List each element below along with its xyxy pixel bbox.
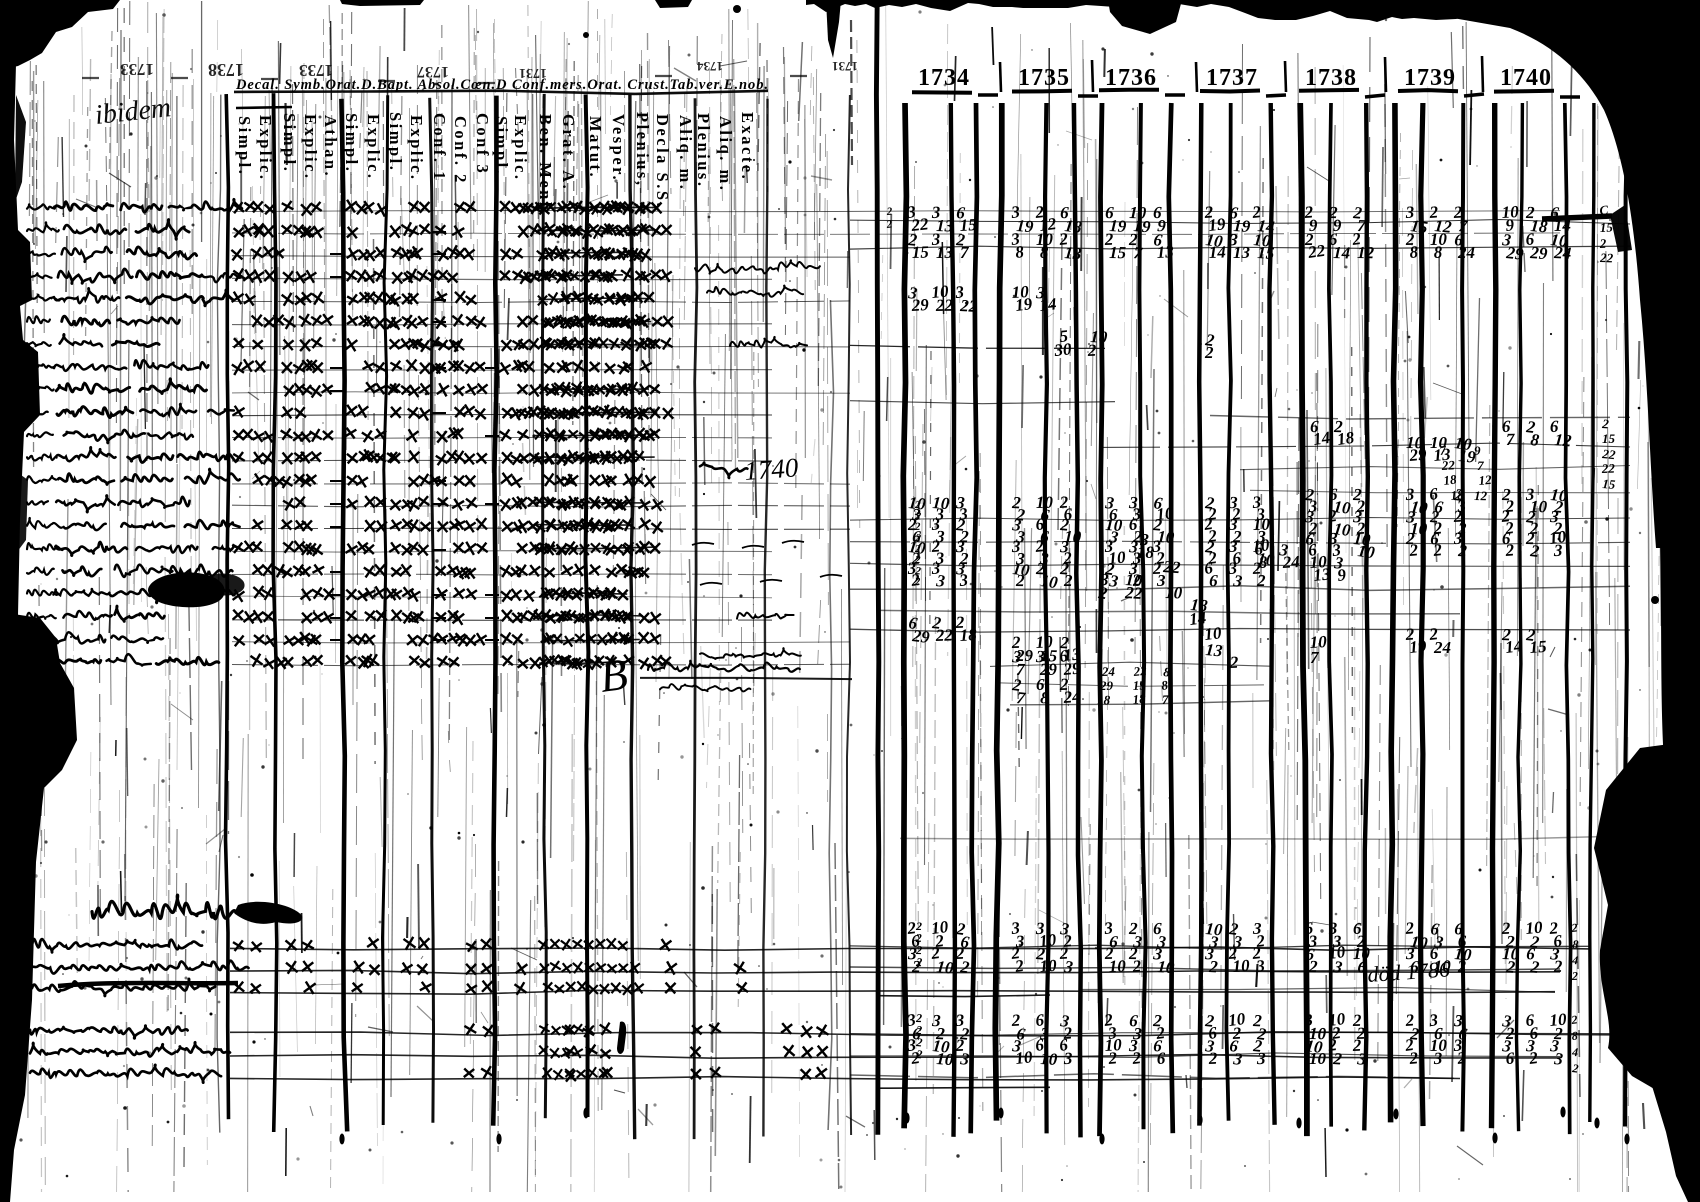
svg-text:10: 10 — [1040, 1049, 1058, 1069]
svg-text:1738: 1738 — [208, 60, 244, 80]
svg-text:2: 2 — [1204, 343, 1214, 362]
svg-text:19: 19 — [1408, 636, 1427, 657]
svg-text:24: 24 — [1553, 243, 1572, 263]
svg-text:14: 14 — [1504, 636, 1523, 657]
svg-text:Simpl.: Simpl. — [492, 116, 511, 176]
svg-text:Conf 3: Conf 3 — [473, 113, 492, 175]
svg-text:2: 2 — [1456, 957, 1467, 976]
svg-text:24: 24 — [1101, 664, 1116, 679]
svg-text:10: 10 — [1232, 956, 1251, 976]
svg-text:1733: 1733 — [120, 60, 154, 79]
svg-text:10: 10 — [1356, 541, 1376, 562]
svg-text:1740: 1740 — [743, 452, 799, 486]
svg-text:2: 2 — [1332, 1049, 1343, 1069]
svg-text:8: 8 — [1572, 937, 1579, 951]
svg-text:6: 6 — [1156, 1049, 1166, 1068]
svg-text:18: 18 — [959, 625, 977, 645]
svg-text:15: 15 — [1602, 476, 1617, 492]
svg-text:1731: 1731 — [832, 59, 858, 74]
svg-text:Athan.: Athan. — [321, 115, 340, 178]
svg-text:13: 13 — [936, 243, 954, 262]
svg-text:Plenius,: Plenius, — [633, 112, 652, 187]
svg-text:1736: 1736 — [1105, 65, 1157, 91]
svg-text:6: 6 — [1505, 1049, 1515, 1068]
svg-text:4: 4 — [1571, 1045, 1578, 1059]
svg-text:1737: 1737 — [417, 63, 449, 80]
svg-text:2: 2 — [1063, 571, 1073, 590]
svg-text:19: 19 — [1014, 294, 1034, 315]
svg-text:2: 2 — [1553, 957, 1563, 976]
svg-text:Conf. 2: Conf. 2 — [451, 116, 470, 185]
svg-text:10: 10 — [1014, 1047, 1033, 1068]
svg-text:29: 29 — [1408, 445, 1428, 466]
svg-text:10: 10 — [1157, 957, 1176, 977]
svg-text:Vesper.—: Vesper.— — [609, 114, 628, 201]
svg-text:3: 3 — [1156, 571, 1166, 590]
svg-text:2: 2 — [1208, 957, 1219, 976]
svg-text:24: 24 — [1457, 243, 1475, 262]
svg-text:7: 7 — [1162, 692, 1169, 707]
svg-text:1735: 1735 — [1018, 65, 1070, 91]
svg-text:13: 13 — [1064, 243, 1083, 263]
svg-text:1734: 1734 — [918, 65, 970, 91]
svg-text:9: 9 — [1474, 443, 1481, 458]
svg-text:1737: 1737 — [1206, 65, 1258, 91]
svg-text:22: 22 — [1601, 461, 1616, 476]
svg-text:15: 15 — [1109, 243, 1127, 262]
svg-text:Decla S.S.: Decla S.S. — [653, 114, 672, 209]
svg-text:10: 10 — [1108, 956, 1126, 976]
svg-text:15: 15 — [1602, 431, 1616, 446]
svg-text:2: 2 — [1308, 957, 1318, 976]
svg-text:22: 22 — [959, 296, 978, 316]
svg-text:2: 2 — [914, 576, 921, 588]
svg-text:Matut.: Matut. — [586, 116, 605, 179]
svg-text:1733: 1733 — [299, 61, 333, 80]
svg-text:15: 15 — [1257, 243, 1275, 263]
svg-text:2: 2 — [1570, 920, 1578, 935]
svg-text:Simpl.: Simpl. — [280, 113, 299, 173]
svg-text:Simpl.: Simpl. — [235, 116, 254, 176]
svg-text:7: 7 — [1477, 458, 1484, 473]
svg-text:24: 24 — [1281, 552, 1300, 572]
svg-text:29: 29 — [1529, 243, 1549, 263]
svg-text:22: 22 — [1599, 250, 1614, 265]
svg-text:8: 8 — [1040, 243, 1049, 262]
svg-text:22: 22 — [1440, 457, 1455, 473]
svg-text:Grat. A.: Grat. A. — [559, 114, 578, 191]
svg-text:2: 2 — [1015, 571, 1025, 590]
svg-text:22: 22 — [934, 625, 953, 645]
svg-text:1740: 1740 — [1500, 65, 1552, 91]
svg-text:12: 12 — [1357, 243, 1375, 262]
svg-text:10: 10 — [936, 1049, 955, 1069]
svg-text:13: 13 — [1205, 640, 1224, 660]
svg-text:10: 10 — [1039, 956, 1058, 976]
svg-text:10: 10 — [1165, 583, 1183, 603]
svg-text:29: 29 — [910, 295, 929, 315]
svg-text:Explic.: Explic. — [511, 115, 530, 182]
svg-text:Plenius.: Plenius. — [694, 113, 713, 188]
svg-text:18: 18 — [1097, 692, 1111, 707]
svg-text:1734: 1734 — [697, 59, 724, 74]
svg-text:10: 10 — [1433, 956, 1451, 976]
svg-text:15: 15 — [911, 242, 929, 262]
svg-text:2: 2 — [1207, 1049, 1218, 1068]
svg-text:1738: 1738 — [1305, 65, 1357, 91]
svg-text:Aliq. m.: Aliq. m. — [676, 115, 695, 191]
svg-text:13: 13 — [1312, 564, 1331, 585]
svg-text:Explic.: Explic. — [364, 114, 383, 181]
svg-text:12: 12 — [1474, 488, 1488, 503]
svg-text:2: 2 — [1571, 969, 1578, 983]
svg-text:Exacte.: Exacte. — [738, 112, 757, 181]
svg-text:1739: 1739 — [1404, 65, 1456, 91]
svg-text:1731: 1731 — [519, 65, 547, 80]
svg-text:10: 10 — [1309, 1049, 1327, 1068]
svg-text:3: 3 — [1256, 1049, 1266, 1068]
svg-text:Simpl.: Simpl. — [342, 113, 361, 173]
svg-text:6: 6 — [1410, 957, 1420, 976]
svg-text:13: 13 — [1156, 242, 1174, 262]
svg-text:30: 30 — [1052, 339, 1072, 360]
svg-text:2: 2 — [1228, 653, 1239, 672]
svg-text:Aliq. m.: Aliq. m. — [716, 116, 735, 192]
svg-text:2: 2 — [1598, 236, 1607, 251]
svg-text:2: 2 — [915, 1047, 923, 1062]
svg-text:3: 3 — [1432, 1049, 1443, 1068]
svg-text:12: 12 — [1554, 430, 1573, 450]
svg-text:24: 24 — [1433, 638, 1451, 657]
svg-text:Explic.: Explic. — [301, 114, 320, 181]
svg-text:14: 14 — [1038, 294, 1057, 315]
svg-text:8: 8 — [1571, 1029, 1578, 1043]
svg-text:3: 3 — [1063, 1049, 1073, 1068]
svg-text:13: 13 — [1233, 243, 1251, 262]
svg-text:15: 15 — [1529, 637, 1548, 657]
svg-text:14: 14 — [1208, 242, 1226, 262]
svg-text:12: 12 — [1478, 472, 1493, 488]
svg-text:29: 29 — [1505, 243, 1525, 264]
svg-text:Conf. 1: Conf. 1 — [430, 113, 449, 182]
svg-text:29: 29 — [911, 626, 932, 647]
svg-text:Ben. Menl,: Ben. Menl, — [536, 114, 555, 216]
svg-text:8: 8 — [1433, 243, 1443, 262]
svg-text:22: 22 — [935, 296, 954, 315]
svg-text:2: 2 — [914, 521, 921, 533]
svg-text:4: 4 — [1571, 953, 1579, 967]
svg-text:Explic.: Explic. — [256, 115, 275, 182]
svg-text:Explic.: Explic. — [407, 115, 426, 182]
svg-text:22: 22 — [1306, 241, 1327, 262]
svg-text:14: 14 — [1333, 243, 1351, 263]
svg-text:2: 2 — [1086, 341, 1097, 360]
svg-text:Simpl.: Simpl. — [386, 112, 405, 172]
svg-text:2: 2 — [1131, 956, 1142, 976]
